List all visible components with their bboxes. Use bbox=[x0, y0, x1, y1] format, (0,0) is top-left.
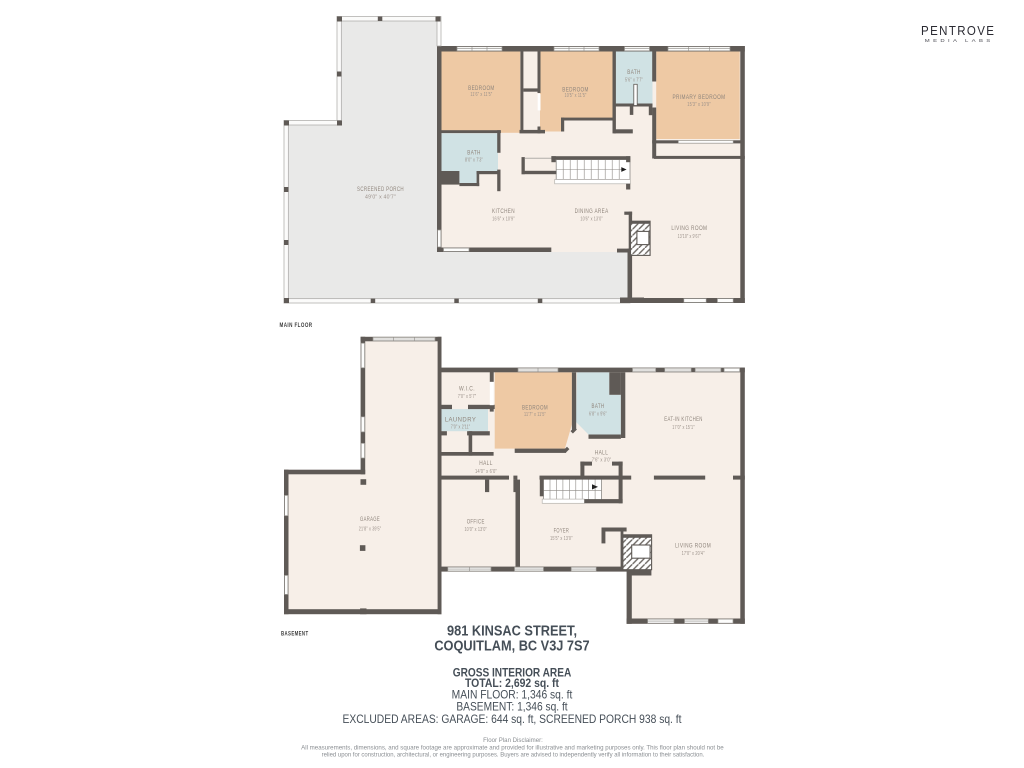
svg-text:7'0" x 2'11": 7'0" x 2'11" bbox=[451, 424, 471, 430]
svg-text:DINING AREA: DINING AREA bbox=[575, 208, 609, 215]
svg-text:KITCHEN: KITCHEN bbox=[492, 208, 515, 215]
svg-text:11'6" x 11'5": 11'6" x 11'5" bbox=[470, 92, 492, 98]
svg-text:BATH: BATH bbox=[627, 69, 641, 76]
svg-text:BATH: BATH bbox=[467, 149, 481, 156]
svg-text:8'0" x 7'3": 8'0" x 7'3" bbox=[465, 157, 483, 163]
svg-text:10'6" x 13'0": 10'6" x 13'0" bbox=[580, 217, 603, 223]
svg-text:BASEMENT: BASEMENT bbox=[281, 631, 309, 638]
svg-text:6'8" x 9'6": 6'8" x 9'6" bbox=[589, 412, 607, 418]
svg-text:MEDIA LABS: MEDIA LABS bbox=[925, 38, 994, 43]
svg-text:BASEMENT: 1,346 sq. ft: BASEMENT: 1,346 sq. ft bbox=[456, 700, 568, 713]
svg-text:LIVING ROOM: LIVING ROOM bbox=[675, 543, 711, 550]
svg-text:13'10" x 9'67": 13'10" x 9'67" bbox=[678, 234, 702, 240]
svg-text:21'8" x 39'5": 21'8" x 39'5" bbox=[359, 526, 382, 532]
svg-text:PENTROVE: PENTROVE bbox=[921, 24, 995, 38]
svg-text:16'6" x 10'9": 16'6" x 10'9" bbox=[492, 217, 515, 223]
svg-text:10'0" x 13'0": 10'0" x 13'0" bbox=[464, 527, 487, 533]
svg-text:SCREENED PORCH: SCREENED PORCH bbox=[357, 186, 404, 193]
svg-text:10'5" x 11'5": 10'5" x 11'5" bbox=[565, 93, 587, 99]
svg-text:PRIMARY BEDROOM: PRIMARY BEDROOM bbox=[673, 94, 726, 101]
svg-text:5'6" x 7'7": 5'6" x 7'7" bbox=[625, 77, 643, 83]
svg-text:7'0" x 5'7": 7'0" x 5'7" bbox=[458, 394, 477, 400]
svg-text:BEDROOM: BEDROOM bbox=[522, 404, 548, 411]
svg-text:HALL: HALL bbox=[595, 449, 609, 456]
svg-text:HALL: HALL bbox=[479, 460, 493, 467]
svg-text:49'0" x 40'7": 49'0" x 40'7" bbox=[365, 194, 396, 200]
svg-text:MAIN FLOOR: MAIN FLOOR bbox=[280, 322, 313, 329]
svg-text:BATH: BATH bbox=[592, 403, 605, 410]
svg-text:14'0" x 6'0": 14'0" x 6'0" bbox=[475, 469, 497, 475]
svg-text:W.I.C.: W.I.C. bbox=[459, 385, 475, 392]
svg-text:relied upon for construction,: relied upon for construction, architectu… bbox=[322, 753, 705, 759]
svg-text:Floor Plan Disclaimer:: Floor Plan Disclaimer: bbox=[483, 738, 543, 744]
svg-text:All measurements, dimensions,: All measurements, dimensions, and square… bbox=[301, 746, 724, 752]
svg-text:LAUNDRY: LAUNDRY bbox=[445, 417, 477, 424]
svg-text:COQUITLAM, BC V3J 7S7: COQUITLAM, BC V3J 7S7 bbox=[434, 637, 589, 654]
svg-text:FOYER: FOYER bbox=[554, 527, 570, 534]
svg-text:LIVING ROOM: LIVING ROOM bbox=[671, 225, 707, 232]
svg-text:15'3" x 10'9": 15'3" x 10'9" bbox=[687, 102, 711, 108]
svg-text:11'7" x 11'5": 11'7" x 11'5" bbox=[524, 412, 546, 418]
svg-text:17'0" x 15'1": 17'0" x 15'1" bbox=[672, 425, 695, 431]
svg-text:17'0" x 20'4": 17'0" x 20'4" bbox=[682, 551, 705, 557]
svg-text:EAT-IN KITCHEN: EAT-IN KITCHEN bbox=[664, 416, 703, 423]
svg-text:GARAGE: GARAGE bbox=[360, 516, 380, 523]
svg-text:15'5" x 13'0": 15'5" x 13'0" bbox=[550, 536, 573, 542]
svg-text:7'6" x 3'0": 7'6" x 3'0" bbox=[592, 457, 612, 463]
svg-text:EXCLUDED AREAS: GARAGE: 644 sq: EXCLUDED AREAS: GARAGE: 644 sq. ft, SCRE… bbox=[343, 713, 683, 726]
svg-text:OFFICE: OFFICE bbox=[467, 519, 485, 526]
